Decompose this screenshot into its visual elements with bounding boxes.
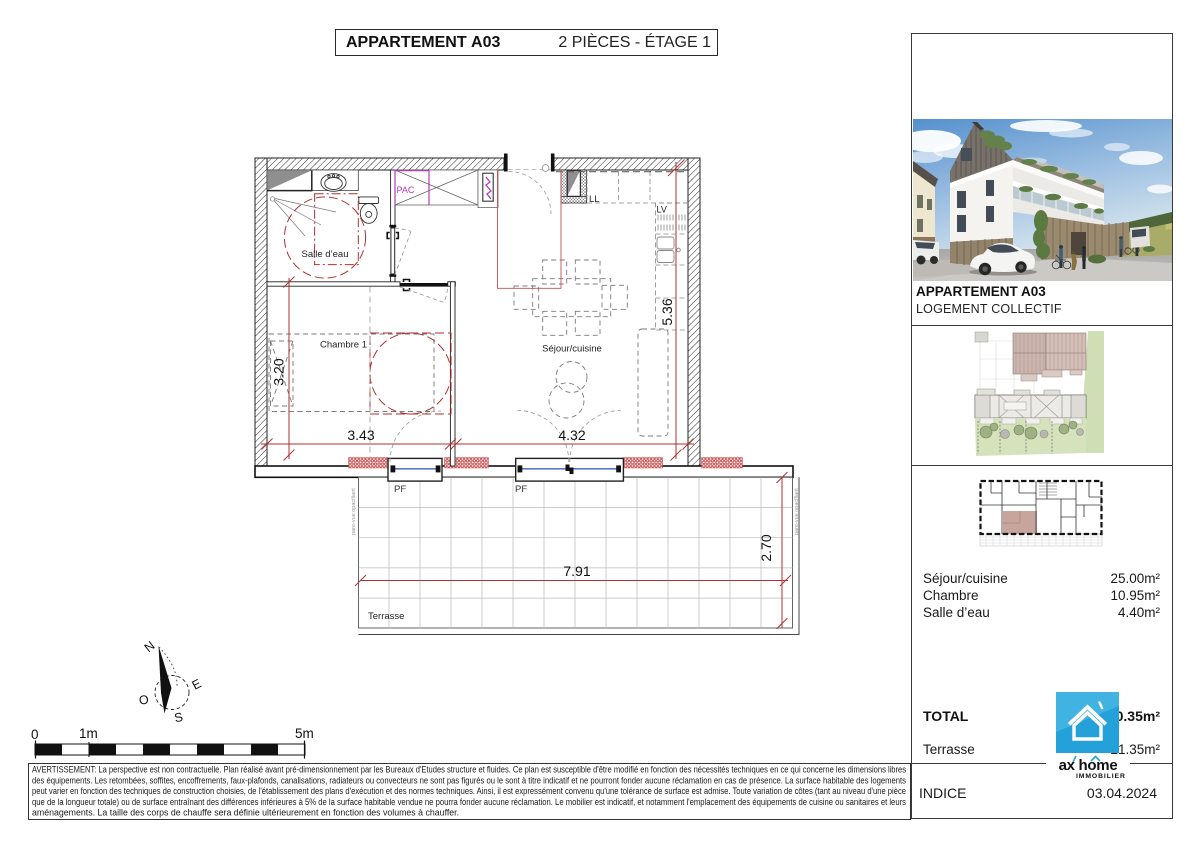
svg-text:peut varier en fonction des te: peut varier en fonction des techniques d… [32, 786, 906, 796]
svg-text:que de la longueur totale) ou: que de la longueur totale) ou de surface… [32, 797, 907, 807]
svg-text:LV: LV [657, 205, 667, 215]
svg-text:0: 0 [31, 727, 39, 742]
svg-text:5.36: 5.36 [659, 298, 675, 325]
svg-text:pare-vue opacifiant: pare-vue opacifiant [351, 488, 357, 535]
svg-text:AVERTISSEMENT: La perspective: AVERTISSEMENT: La perspective est non co… [32, 765, 907, 775]
svg-text:1m: 1m [79, 726, 98, 741]
svg-text:PF: PF [515, 484, 527, 495]
svg-text:4.32: 4.32 [558, 427, 585, 443]
svg-text:Terrasse: Terrasse [368, 611, 404, 622]
svg-text:Séjour/cuisine: Séjour/cuisine [542, 344, 602, 355]
svg-text:PF: PF [394, 484, 406, 495]
svg-text:pare-vue opacifiant: pare-vue opacifiant [794, 488, 800, 535]
svg-text:S: S [173, 710, 184, 725]
svg-text:2.70: 2.70 [758, 534, 774, 561]
svg-text:N: N [142, 639, 158, 656]
svg-text:aménagements. La taille des co: aménagements. La taille des corps de cha… [32, 808, 459, 818]
svg-text:O: O [138, 692, 150, 708]
svg-text:E: E [190, 676, 204, 692]
svg-text:Salle d’eau: Salle d’eau [301, 249, 348, 260]
svg-text:3.20: 3.20 [271, 358, 287, 385]
svg-text:7.91: 7.91 [563, 563, 590, 579]
svg-text:des équipements. Les retombées: des équipements. Les retombées, soffites… [32, 775, 907, 785]
svg-text:Chambre 1: Chambre 1 [320, 340, 367, 351]
svg-text:5m: 5m [295, 726, 314, 741]
svg-text:PAC: PAC [397, 185, 415, 195]
svg-text:3.43: 3.43 [347, 427, 374, 443]
